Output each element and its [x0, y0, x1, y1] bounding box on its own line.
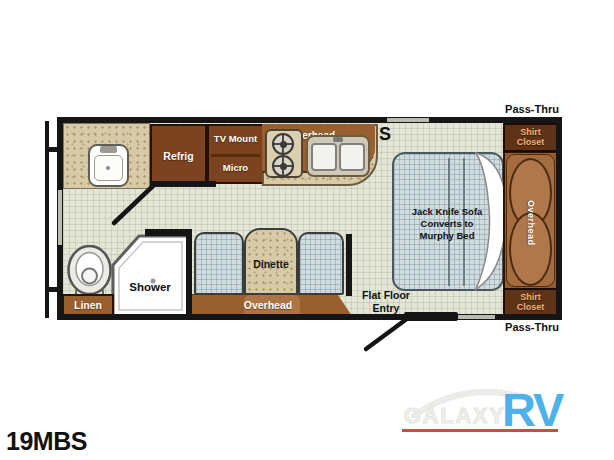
dinette-overhead-label: Overhead [228, 299, 308, 311]
wardrobe-overhead-label: Overhead [522, 188, 536, 258]
kitchen-sink-basin-right [339, 143, 365, 171]
sofa-label-line2: Converts to [394, 218, 500, 230]
sofa-label-line1: Jack Knife Sofa [394, 206, 500, 218]
front-cap-stub-top [45, 147, 58, 152]
shower-wall [145, 229, 192, 236]
dinette-bench-right [298, 232, 344, 295]
right-wall [556, 117, 562, 320]
kitchen-sink-basin-left [311, 143, 337, 171]
entry-door-swing [366, 318, 408, 349]
left-window [58, 190, 62, 245]
cabinet-shelf-line [211, 154, 260, 157]
model-number: 19MBS [6, 427, 87, 456]
stove-burner-bottom [272, 155, 294, 177]
refrigerator-label: Refrig [152, 150, 205, 162]
dinette-partition-wall [346, 234, 352, 296]
shower-label: Shower [118, 281, 182, 293]
rv-floorplan-page: Refrig TV Mount Micro Overhead S Jack Kn… [0, 0, 614, 460]
galaxy-watermark-text: GALAXY [404, 404, 506, 429]
toilet [66, 245, 114, 300]
stove-burner-top [272, 133, 294, 155]
tv-mount-label: TV Mount [209, 133, 262, 144]
rv-logo-text: RV [502, 386, 562, 433]
pass-thru-label-top: Pass-Thru [494, 103, 570, 115]
top-wall [57, 117, 562, 123]
s-symbol: S [379, 124, 391, 145]
bath-sink-faucet [100, 146, 117, 153]
top-window [387, 118, 429, 122]
logo-underline [402, 429, 558, 432]
flat-floor-entry-label: Flat Floor Entry [348, 289, 424, 314]
sofa-label: Jack Knife Sofa Converts to Murphy Bed [394, 206, 500, 242]
micro-label: Micro [209, 162, 262, 173]
bottom-window [456, 315, 495, 319]
tv-mount-micro-cabinet: TV Mount Micro [207, 124, 264, 184]
bath-partition-wall [186, 236, 192, 317]
dinette-table: Dinette [244, 228, 298, 295]
shower-pan [111, 234, 191, 318]
flat-floor-entry-line2: Entry [348, 302, 424, 315]
dinette-bench-left [194, 232, 244, 295]
dinette-label: Dinette [246, 258, 296, 270]
flat-floor-entry-line1: Flat Floor [348, 289, 424, 302]
refrigerator: Refrig [150, 124, 207, 184]
sofa-label-line3: Murphy Bed [394, 230, 500, 242]
kitchen-sink-faucet [333, 137, 343, 142]
bath-sink-drain [106, 166, 110, 170]
bath-wall [150, 181, 216, 187]
front-cap-stub-bottom [45, 287, 58, 292]
linen-label: Linen [64, 296, 112, 311]
shirt-closet-bottom-line2: Closet [505, 303, 556, 313]
shirt-closet-top-line2: Closet [505, 138, 556, 148]
pass-thru-label-bottom: Pass-Thru [494, 321, 570, 333]
shirt-closet-top: Shirt Closet [503, 123, 558, 152]
